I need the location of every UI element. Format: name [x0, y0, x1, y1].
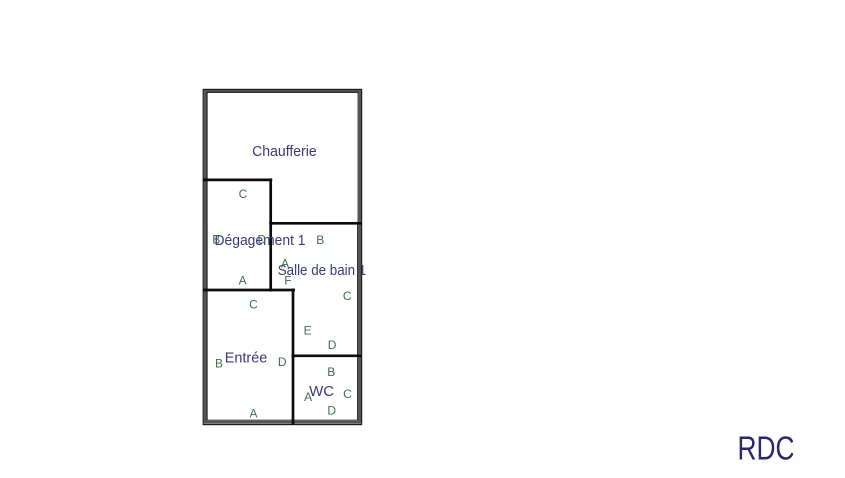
svg-text:A: A	[304, 390, 312, 404]
svg-text:A: A	[239, 274, 247, 288]
svg-text:C: C	[239, 187, 248, 201]
svg-text:Entrée: Entrée	[225, 350, 268, 367]
svg-text:B: B	[212, 233, 220, 247]
svg-text:Chaufferie: Chaufferie	[252, 143, 317, 160]
svg-text:D: D	[278, 355, 287, 369]
svg-text:D: D	[327, 404, 336, 418]
svg-text:A: A	[281, 257, 289, 271]
svg-text:B: B	[327, 365, 335, 379]
svg-text:F: F	[284, 274, 291, 288]
svg-text:D: D	[257, 233, 266, 247]
svg-text:WC: WC	[309, 383, 334, 400]
svg-text:C: C	[343, 387, 352, 401]
svg-text:B: B	[215, 357, 223, 371]
svg-text:E: E	[304, 324, 312, 338]
svg-text:D: D	[328, 338, 337, 352]
svg-text:B: B	[316, 233, 324, 247]
svg-text:RDC: RDC	[738, 430, 795, 467]
svg-text:A: A	[249, 406, 257, 420]
svg-text:C: C	[343, 289, 352, 303]
svg-text:C: C	[249, 297, 258, 311]
